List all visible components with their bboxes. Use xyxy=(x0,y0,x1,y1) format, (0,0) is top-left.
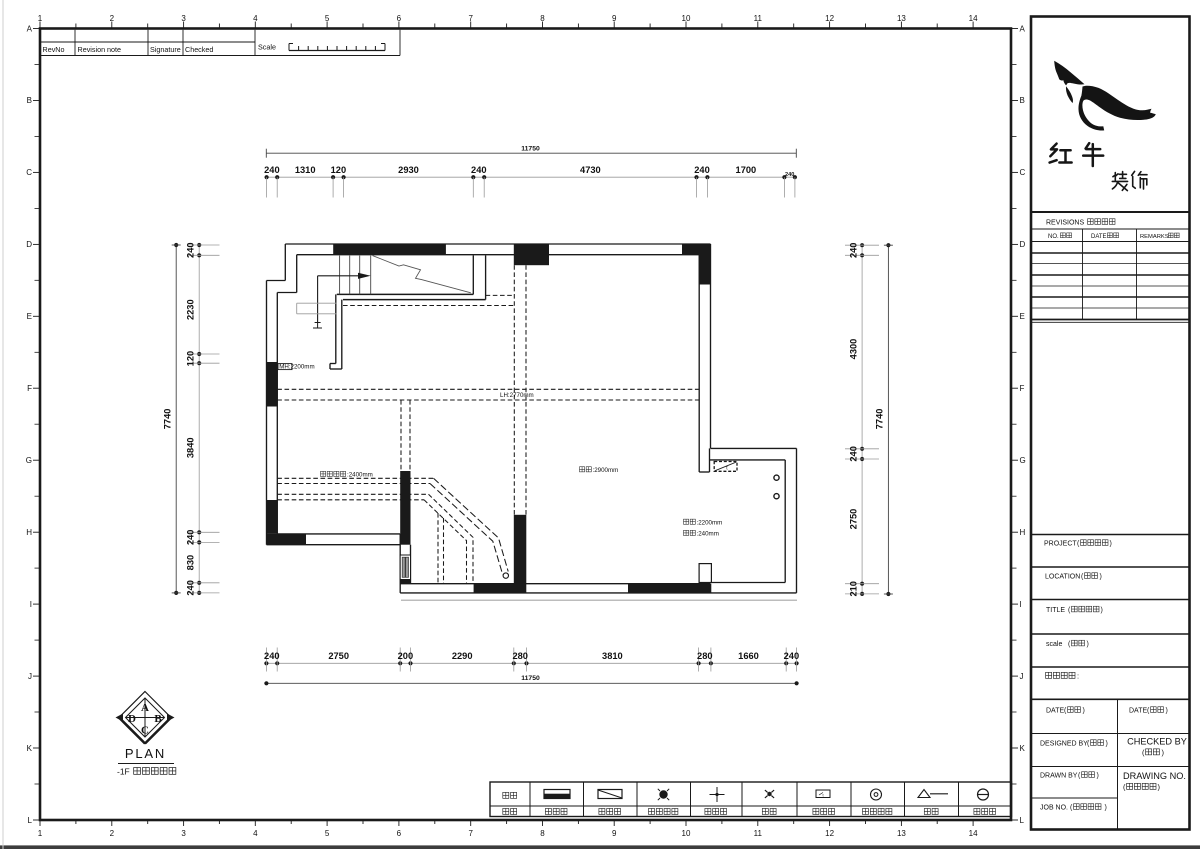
svg-text:10: 10 xyxy=(682,14,691,23)
svg-text:240: 240 xyxy=(264,651,280,661)
svg-text:DATE: DATE xyxy=(1129,708,1147,715)
svg-text:11: 11 xyxy=(754,14,763,23)
svg-text:C: C xyxy=(1020,168,1026,177)
svg-text:): ) xyxy=(1087,641,1089,648)
svg-text:): ) xyxy=(1105,805,1107,812)
svg-text:Revision note: Revision note xyxy=(78,45,122,54)
svg-text:2290: 2290 xyxy=(452,651,473,661)
svg-text:H: H xyxy=(1020,528,1026,537)
svg-text:G: G xyxy=(1020,456,1026,465)
svg-text:240: 240 xyxy=(471,165,487,175)
svg-text:2930: 2930 xyxy=(398,165,419,175)
svg-text:): ) xyxy=(1083,708,1085,715)
svg-text:REVISIONS: REVISIONS xyxy=(1046,220,1084,227)
svg-text:11750: 11750 xyxy=(521,675,540,682)
svg-text:4300: 4300 xyxy=(849,339,859,360)
svg-text:I: I xyxy=(30,600,32,609)
svg-text:TITLE: TITLE xyxy=(1046,607,1065,614)
svg-text:A: A xyxy=(27,24,33,33)
svg-text:4730: 4730 xyxy=(580,165,601,175)
svg-text:2750: 2750 xyxy=(849,509,859,530)
svg-text:240: 240 xyxy=(694,165,710,175)
svg-text:240: 240 xyxy=(186,242,196,258)
svg-text:REMARKS: REMARKS xyxy=(1140,234,1169,240)
svg-text:H: H xyxy=(26,528,32,537)
svg-text:JOB NO.: JOB NO. xyxy=(1040,805,1068,812)
svg-text:): ) xyxy=(1097,773,1099,780)
svg-text:RevNo: RevNo xyxy=(43,45,65,54)
svg-text:B: B xyxy=(1020,96,1025,105)
svg-text:F: F xyxy=(1020,384,1025,393)
svg-text:B: B xyxy=(154,713,162,725)
svg-text:K: K xyxy=(27,744,33,753)
svg-text:1660: 1660 xyxy=(738,651,759,661)
svg-text:830: 830 xyxy=(186,555,196,571)
svg-text::240mm: :240mm xyxy=(697,531,719,538)
svg-text:120: 120 xyxy=(331,165,347,175)
svg-text:PROJECT: PROJECT xyxy=(1044,541,1077,548)
svg-text:D: D xyxy=(1020,240,1026,249)
svg-text:C: C xyxy=(26,168,32,177)
svg-text:4: 4 xyxy=(253,14,258,23)
svg-text:2230: 2230 xyxy=(186,299,196,320)
svg-text:): ) xyxy=(1110,541,1112,548)
svg-text::2900mm: :2900mm xyxy=(593,467,619,474)
svg-text:LOCATION: LOCATION xyxy=(1045,574,1080,581)
svg-text:11: 11 xyxy=(754,829,763,838)
svg-text:B: B xyxy=(27,96,32,105)
svg-text:1310: 1310 xyxy=(295,165,316,175)
svg-text:I: I xyxy=(1020,600,1022,609)
svg-text:Signature: Signature xyxy=(150,45,181,54)
svg-text:240: 240 xyxy=(849,243,859,259)
svg-text:3: 3 xyxy=(181,14,186,23)
svg-text:3: 3 xyxy=(181,829,186,838)
svg-text:): ) xyxy=(1166,708,1168,715)
svg-text::: : xyxy=(1077,672,1079,681)
svg-text::2200mm: :2200mm xyxy=(697,519,723,526)
svg-text:240: 240 xyxy=(186,530,196,546)
svg-text:7740: 7740 xyxy=(874,409,884,430)
svg-text:13: 13 xyxy=(897,829,906,838)
svg-text:120: 120 xyxy=(186,351,196,367)
svg-text:DATE: DATE xyxy=(1046,708,1064,715)
svg-text:2750: 2750 xyxy=(328,651,349,661)
svg-text:2: 2 xyxy=(110,14,115,23)
svg-text:12: 12 xyxy=(825,14,834,23)
svg-text:F: F xyxy=(27,384,32,393)
svg-text:8: 8 xyxy=(540,829,545,838)
svg-text:240: 240 xyxy=(186,580,196,596)
svg-text:240: 240 xyxy=(784,651,800,661)
svg-text:200: 200 xyxy=(398,651,414,661)
svg-text:J: J xyxy=(1020,672,1024,681)
svg-text:DATE: DATE xyxy=(1091,234,1107,240)
svg-text:DRAWN BY: DRAWN BY xyxy=(1040,773,1078,780)
svg-text:8: 8 xyxy=(540,14,545,23)
svg-text:): ) xyxy=(1106,741,1108,748)
svg-text:280: 280 xyxy=(512,651,528,661)
svg-text:): ) xyxy=(1100,574,1102,581)
svg-text:LH:2770mm: LH:2770mm xyxy=(500,392,534,399)
svg-text:Scale: Scale xyxy=(258,43,276,52)
svg-text:3840: 3840 xyxy=(186,437,196,458)
svg-text:280: 280 xyxy=(697,651,713,661)
svg-text:): ) xyxy=(1101,607,1103,614)
svg-text:D: D xyxy=(128,713,136,725)
svg-text:210: 210 xyxy=(849,581,859,597)
svg-text:7740: 7740 xyxy=(163,409,173,430)
svg-text:L: L xyxy=(1020,816,1025,825)
svg-text:K: K xyxy=(1020,744,1026,753)
svg-text:240: 240 xyxy=(849,446,859,462)
svg-text:7: 7 xyxy=(468,14,473,23)
svg-text:11750: 11750 xyxy=(521,146,540,153)
svg-text:4: 4 xyxy=(253,829,258,838)
svg-text:A: A xyxy=(141,702,149,714)
svg-text::2400mm: :2400mm xyxy=(347,472,373,479)
svg-text:14: 14 xyxy=(969,14,978,23)
svg-text:PLAN: PLAN xyxy=(125,746,166,761)
svg-text:7: 7 xyxy=(468,829,473,838)
svg-text:DRAWING NO.: DRAWING NO. xyxy=(1123,771,1186,781)
svg-text:E: E xyxy=(1020,312,1025,321)
svg-text:scale: scale xyxy=(1046,641,1062,648)
svg-text:C: C xyxy=(141,725,149,737)
svg-text:13: 13 xyxy=(897,14,906,23)
svg-text:5: 5 xyxy=(325,14,330,23)
svg-text:G: G xyxy=(26,456,32,465)
svg-text:9: 9 xyxy=(612,14,617,23)
svg-text:NO.: NO. xyxy=(1048,234,1059,240)
svg-text:240: 240 xyxy=(785,172,794,178)
svg-text:L: L xyxy=(28,816,33,825)
svg-text:Checked: Checked xyxy=(185,45,213,54)
svg-text:-1F: -1F xyxy=(117,767,130,777)
svg-text:14: 14 xyxy=(969,829,978,838)
svg-text:5: 5 xyxy=(325,829,330,838)
svg-text:DESIGNED BY: DESIGNED BY xyxy=(1040,741,1088,748)
svg-text:E: E xyxy=(27,312,32,321)
svg-text:CHECKED BY: CHECKED BY xyxy=(1127,737,1187,747)
svg-text:1700: 1700 xyxy=(736,165,757,175)
svg-text:6: 6 xyxy=(397,829,402,838)
svg-text:A: A xyxy=(1020,24,1026,33)
svg-text:12: 12 xyxy=(825,829,834,838)
svg-text:MH:2200mm: MH:2200mm xyxy=(279,364,314,371)
svg-text:D: D xyxy=(26,240,32,249)
svg-text:1: 1 xyxy=(38,14,43,23)
svg-text:1: 1 xyxy=(38,829,43,838)
svg-text:3810: 3810 xyxy=(602,651,623,661)
svg-text:2: 2 xyxy=(110,829,115,838)
svg-text:9: 9 xyxy=(612,829,617,838)
svg-text:240: 240 xyxy=(264,165,280,175)
svg-text:10: 10 xyxy=(682,829,691,838)
svg-text:6: 6 xyxy=(397,14,402,23)
svg-text:J: J xyxy=(28,672,32,681)
